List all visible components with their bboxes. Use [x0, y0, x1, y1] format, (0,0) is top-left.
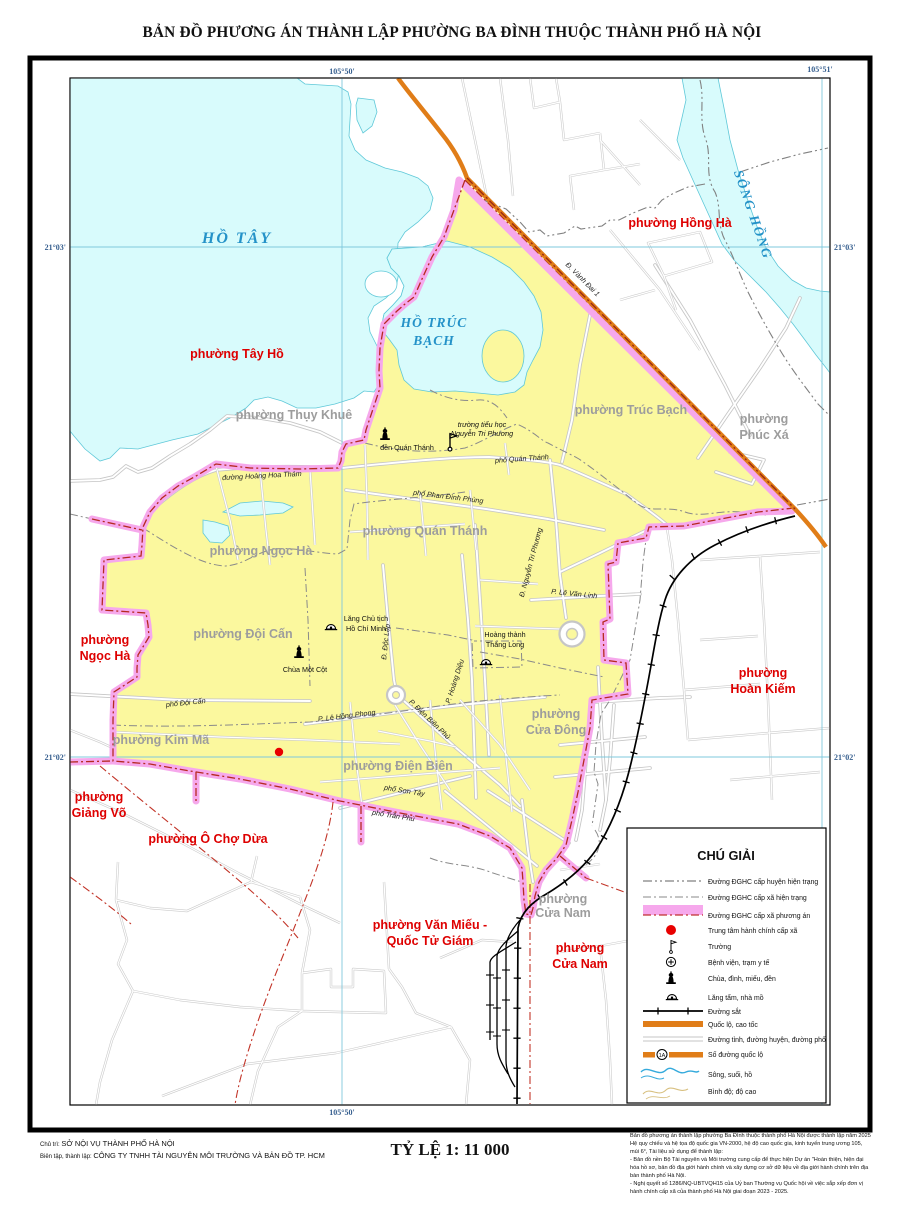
- svg-text:phường Ngọc Hà: phường Ngọc Hà: [210, 544, 313, 558]
- svg-text:phường Hồng Hà: phường Hồng Hà: [628, 216, 731, 230]
- svg-text:trường tiểu học: trường tiểu học: [458, 420, 507, 429]
- svg-text:bàn thành phố Hà Nội.: bàn thành phố Hà Nội.: [630, 1173, 686, 1179]
- svg-text:phường: phường: [81, 633, 129, 647]
- svg-text:21°02': 21°02': [834, 753, 855, 762]
- svg-text:phường Trúc Bạch: phường Trúc Bạch: [575, 403, 687, 417]
- svg-text:TỶ LỆ 1: 11 000: TỶ LỆ 1: 11 000: [390, 1140, 509, 1159]
- svg-text:phường: phường: [740, 412, 788, 426]
- svg-text:Đường ĐGHC cấp xã hiện trạng: Đường ĐGHC cấp xã hiện trạng: [708, 893, 807, 902]
- svg-text:HỒ TRÚC: HỒ TRÚC: [400, 315, 468, 330]
- svg-text:múi 6°, Tài liệu sử dụng để th: múi 6°, Tài liệu sử dụng để thành lập:: [630, 1148, 723, 1155]
- svg-text:Bình độ; độ cao: Bình độ; độ cao: [708, 1089, 756, 1096]
- svg-text:Đường ĐGHC cấp huyện hiện trạn: Đường ĐGHC cấp huyện hiện trạng: [708, 877, 818, 886]
- svg-text:phường Quán Thánh: phường Quán Thánh: [363, 524, 488, 538]
- svg-text:Hoàng thành: Hoàng thành: [484, 630, 525, 639]
- svg-text:phường Văn Miếu -: phường Văn Miếu -: [373, 918, 487, 932]
- svg-text:BẢN ĐỒ PHƯƠNG ÁN THÀNH LẬP PHƯ: BẢN ĐỒ PHƯƠNG ÁN THÀNH LẬP PHƯỜNG BA ĐÌN…: [143, 23, 762, 41]
- svg-text:Trường: Trường: [708, 944, 731, 951]
- svg-text:105°50': 105°50': [329, 1108, 354, 1117]
- svg-text:Trung tâm hành chính cấp xã: Trung tâm hành chính cấp xã: [708, 926, 798, 935]
- svg-text:CHÚ GIẢI: CHÚ GIẢI: [697, 848, 755, 863]
- svg-text:Quốc Tử Giám: Quốc Tử Giám: [387, 934, 474, 948]
- svg-text:Lăng Chủ tịch: Lăng Chủ tịch: [344, 614, 388, 623]
- svg-text:phường: phường: [539, 892, 587, 906]
- svg-text:Quốc lộ, cao tốc: Quốc lộ, cao tốc: [708, 1020, 758, 1029]
- svg-text:phường Tây Hồ: phường Tây Hồ: [190, 347, 284, 361]
- svg-text:HỒ TÂY: HỒ TÂY: [201, 227, 272, 247]
- svg-text:Cửa Nam: Cửa Nam: [552, 957, 608, 971]
- svg-text:Biên tập, thành lập: CÔNG TY T: Biên tập, thành lập: CÔNG TY TNHH TÀI NG…: [40, 1150, 325, 1160]
- svg-text:Chùa, đình, miếu, đền: Chùa, đình, miếu, đền: [708, 974, 776, 983]
- svg-text:Đường tỉnh, đường huyện, đường: Đường tỉnh, đường huyện, đường phố: [708, 1035, 826, 1044]
- svg-text:Thăng Long: Thăng Long: [486, 640, 524, 649]
- svg-text:Chùa Một Cột: Chùa Một Cột: [283, 665, 327, 674]
- svg-text:phường: phường: [556, 941, 604, 955]
- svg-text:phường: phường: [75, 790, 123, 804]
- svg-text:Sông, suối, hồ: Sông, suối, hồ: [708, 1070, 752, 1079]
- svg-text:Bệnh viện, trạm y tế: Bệnh viện, trạm y tế: [708, 958, 769, 967]
- svg-text:Giảng Võ: Giảng Võ: [72, 806, 127, 820]
- svg-text:BẠCH: BẠCH: [412, 333, 455, 348]
- svg-text:- Nghị quyết số 1286/NQ-UBTVQH: - Nghị quyết số 1286/NQ-UBTVQH15 của Uỷ …: [630, 1180, 863, 1187]
- svg-text:Nguyễn Tri Phương: Nguyễn Tri Phương: [451, 429, 513, 438]
- svg-text:phường Kim Mã: phường Kim Mã: [113, 733, 209, 747]
- svg-text:Hoàn Kiếm: Hoàn Kiếm: [730, 682, 795, 696]
- svg-text:Bản đồ phương án thành lập phư: Bản đồ phương án thành lập phường Ba Đìn…: [630, 1133, 871, 1139]
- svg-text:105°51': 105°51': [807, 65, 832, 74]
- svg-text:phường Điện Biên: phường Điện Biên: [343, 759, 453, 773]
- svg-text:Số đường quốc lộ: Số đường quốc lộ: [708, 1050, 763, 1059]
- svg-text:Ngọc Hà: Ngọc Hà: [80, 649, 131, 663]
- svg-text:21°02': 21°02': [45, 753, 66, 762]
- svg-text:phường Thụy Khuê: phường Thụy Khuê: [236, 408, 353, 422]
- svg-text:phường: phường: [532, 707, 580, 721]
- svg-text:105°50': 105°50': [329, 67, 354, 76]
- svg-text:Hồ Chí Minh: Hồ Chí Minh: [346, 624, 386, 633]
- svg-text:Phúc Xá: Phúc Xá: [739, 428, 788, 442]
- svg-text:Hệ quy chiếu và hệ tọa độ quốc: Hệ quy chiếu và hệ tọa độ quốc gia VN-20…: [630, 1141, 863, 1147]
- svg-text:1A: 1A: [659, 1053, 666, 1059]
- svg-text:21°03': 21°03': [45, 243, 66, 252]
- svg-text:21°03': 21°03': [834, 243, 855, 252]
- svg-text:- Bản đồ nền Bộ Tài nguyên và: - Bản đồ nền Bộ Tài nguyên và Môi trường…: [630, 1156, 864, 1163]
- svg-text:Đường ĐGHC cấp xã phương án: Đường ĐGHC cấp xã phương án: [708, 911, 810, 920]
- svg-text:phường: phường: [739, 666, 787, 680]
- svg-text:phường Ô Chợ Dừa: phường Ô Chợ Dừa: [148, 831, 268, 846]
- svg-text:Chủ trì: SỞ NỘI VỤ THÀNH PHỐ: Chủ trì: SỞ NỘI VỤ THÀNH PHỐ HÀ NỘI: [40, 1138, 175, 1148]
- svg-text:đền Quán Thánh: đền Quán Thánh: [380, 443, 434, 452]
- svg-text:Cửa Đông: Cửa Đông: [526, 723, 586, 737]
- svg-text:Cửa Nam: Cửa Nam: [535, 906, 591, 920]
- svg-text:Lăng tẩm, nhà mồ: Lăng tẩm, nhà mồ: [708, 993, 764, 1002]
- svg-text:hành chính cấp xã của thành ph: hành chính cấp xã của thành phố Hà Nội g…: [630, 1188, 789, 1195]
- svg-text:phường Đội Cấn: phường Đội Cấn: [193, 627, 292, 641]
- svg-text:hóa hồ sơ, bản đồ địa giới hàn: hóa hồ sơ, bản đồ địa giới hành chính và…: [630, 1164, 869, 1171]
- svg-text:Đường sắt: Đường sắt: [708, 1007, 741, 1016]
